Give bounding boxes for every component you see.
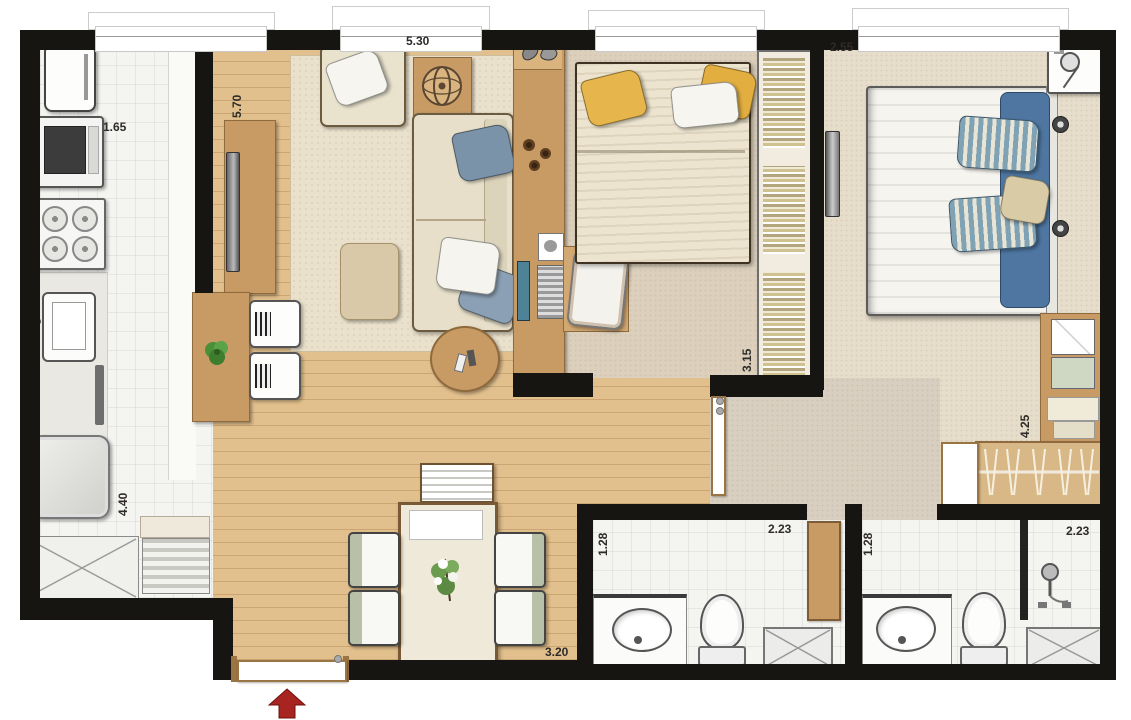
vent-grille — [142, 538, 210, 594]
storage-box — [1053, 421, 1095, 439]
wall-stub — [513, 373, 593, 397]
cutting-board — [95, 365, 104, 425]
storage-box — [1047, 397, 1099, 421]
sink-basin — [612, 608, 672, 652]
bar-stool — [249, 352, 301, 400]
room-divider-cabinet — [513, 38, 565, 377]
faucet-icon — [634, 636, 642, 644]
dining-chair — [348, 532, 400, 588]
door-hinge — [334, 655, 342, 663]
door-hinge — [716, 407, 724, 415]
oven-door — [44, 126, 86, 174]
stool-back — [255, 364, 271, 388]
wall-bath1-top — [577, 504, 807, 520]
burner — [42, 236, 68, 262]
kitchen-sink — [42, 292, 96, 362]
wall-right — [1100, 30, 1116, 680]
wall-bath1-left — [577, 504, 593, 680]
keyboard — [537, 265, 565, 319]
pillow-beige — [999, 174, 1052, 225]
fridge-handle — [84, 54, 88, 100]
pillow-striped — [956, 115, 1039, 172]
bar-stool — [249, 300, 301, 348]
toilet-bowl — [962, 592, 1006, 650]
remote — [467, 350, 477, 367]
wall-bath-divider — [845, 504, 862, 680]
door-hinge — [716, 397, 724, 405]
closet-hanging-rail — [975, 441, 1107, 507]
book-stack — [763, 58, 805, 148]
x-mark-icon — [1028, 629, 1100, 667]
burner — [72, 236, 98, 262]
hangers-icon — [977, 443, 1101, 501]
sofa-pillow-white — [435, 236, 502, 296]
washing-machine — [30, 435, 110, 519]
oven-handle — [88, 126, 99, 174]
entrance-door — [237, 660, 347, 682]
floor-plan: 1.65 4.40 5.70 5.30 3.15 2.55 4.25 3.20 … — [0, 0, 1131, 720]
x-mark-icon — [26, 537, 138, 599]
kitchen-window — [95, 26, 267, 52]
dining-table — [398, 502, 498, 666]
decor-bowl — [529, 160, 540, 171]
wall-master-left — [810, 30, 824, 390]
shower-tray — [763, 627, 833, 669]
dim-bedroom-length: 3.15 — [740, 349, 754, 372]
folded-clothes — [1051, 357, 1095, 389]
bedroom-window — [595, 26, 757, 52]
side-table — [413, 57, 472, 116]
coffee-table — [430, 326, 500, 392]
dim-master-width: 2.55 — [830, 40, 853, 54]
wall-left — [20, 30, 40, 620]
tv — [226, 152, 240, 272]
wall-bath-bottom — [577, 664, 1115, 680]
monitor — [517, 261, 530, 321]
stool-back — [255, 312, 271, 336]
wall-bedroom-bottom — [710, 375, 823, 397]
sink-basin — [52, 302, 86, 350]
desk-item — [544, 240, 557, 252]
shower-partition — [1020, 520, 1028, 620]
dim-kitchen-length: 4.40 — [116, 493, 130, 516]
dim-bath1-length: 1.28 — [596, 533, 610, 556]
entrance-arrow-icon — [268, 688, 306, 720]
service-shelf — [140, 516, 210, 538]
shower-tray — [1026, 627, 1102, 669]
x-mark-icon — [765, 629, 831, 667]
toilet-tank — [960, 646, 1008, 666]
burner — [72, 206, 98, 232]
wall-master-bottom — [937, 504, 1115, 520]
sink-basin — [876, 606, 936, 652]
wardrobe — [1040, 313, 1104, 445]
hallway-carpet — [710, 378, 940, 520]
desk-shelf-item — [538, 233, 564, 261]
plant-icon — [203, 338, 231, 366]
wall-kitchen-bottom — [20, 598, 233, 620]
dining-chair — [494, 590, 546, 646]
sofa-seam — [416, 219, 486, 221]
book-stack — [763, 166, 805, 254]
dim-living-width: 5.30 — [406, 34, 429, 48]
dining-chair — [494, 532, 546, 588]
toilet-tank — [698, 646, 746, 666]
wall-bottom — [345, 660, 593, 680]
tv — [825, 131, 840, 217]
dim-kitchen-width: 1.65 — [103, 120, 126, 134]
faucet-icon — [898, 636, 906, 644]
stove — [34, 198, 106, 270]
oven — [34, 116, 104, 188]
service-area-box — [25, 536, 139, 600]
bathroom-door-leaf — [807, 521, 841, 621]
ottoman — [340, 243, 399, 320]
table-runner — [409, 510, 483, 540]
remote — [454, 353, 467, 373]
dim-bath2-length: 1.28 — [861, 533, 875, 556]
open-door-leaf — [941, 442, 979, 507]
fan-decor-icon — [414, 58, 471, 115]
sconce-icon — [1052, 116, 1069, 133]
fridge — [44, 44, 96, 112]
sheet-fold — [577, 150, 745, 153]
decor-bowl — [540, 148, 551, 159]
dining-chair — [348, 590, 400, 646]
sconce-icon — [1052, 220, 1069, 237]
flower-centerpiece-icon — [427, 553, 463, 609]
folded-linens — [1051, 319, 1095, 355]
pillow-white — [670, 81, 740, 130]
master-window — [858, 26, 1060, 52]
dim-living-length: 5.70 — [230, 95, 244, 118]
bookshelf — [757, 50, 815, 386]
sideboard — [420, 463, 494, 503]
dim-master-length: 4.25 — [1018, 415, 1032, 438]
dim-bath2-width: 2.23 — [1066, 524, 1089, 538]
book-stack — [763, 272, 805, 378]
wall-kitchen-living — [195, 48, 213, 293]
decor-bowl — [523, 139, 535, 151]
dim-bath1-width: 2.23 — [768, 522, 791, 536]
shower-head-icon — [1036, 560, 1080, 612]
burner — [42, 206, 68, 232]
dim-dining-width: 3.20 — [545, 645, 568, 659]
wall-left-lower — [213, 610, 233, 680]
toilet-bowl — [700, 594, 744, 650]
